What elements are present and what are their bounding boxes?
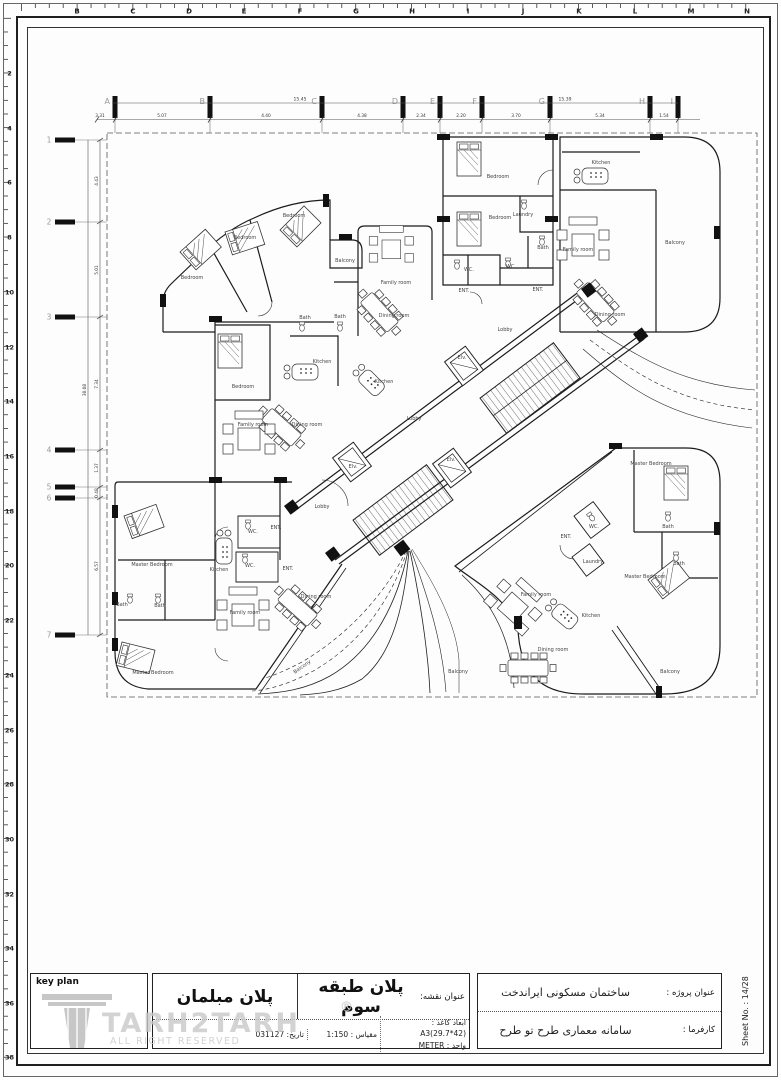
dim-segment-left: 7.34 <box>94 379 100 389</box>
grid-row-number: 5 <box>47 483 52 492</box>
room-label: ENT. <box>533 287 544 293</box>
drawing-sheet: BCDEFGHIJKLMN246810121416182022242628303… <box>0 0 781 1080</box>
room-label: ENT. <box>561 534 572 540</box>
room-label: WC. <box>245 563 255 569</box>
ruler-letter: K <box>576 8 582 16</box>
room-label: Bedroom <box>283 213 306 219</box>
room-label: Master Bedroom <box>131 562 172 568</box>
room-label: Lobby <box>314 504 329 510</box>
grid-column-marker <box>480 96 485 118</box>
room-label: Family room <box>230 610 261 616</box>
room-label: ENT. <box>283 566 294 572</box>
room-label: WC. <box>506 264 516 270</box>
dim-segment-top: 3.70 <box>511 113 521 119</box>
ruler-number: 4 <box>7 125 12 133</box>
room-label: Bath <box>662 524 674 530</box>
room-label: Elv. <box>458 355 467 361</box>
room-label: Dining room <box>292 422 323 428</box>
ruler-letter: E <box>242 8 247 16</box>
room-label: Master Bedroom <box>630 461 671 467</box>
grid-column-letter: H <box>639 97 645 106</box>
dim-segment-top: 3.31 <box>95 113 105 119</box>
grid-row-marker <box>55 315 75 320</box>
grid-row-marker <box>55 633 75 638</box>
dim-segment-left: 5.01 <box>94 265 100 275</box>
ruler-letter: I <box>467 8 470 16</box>
grid-column-marker <box>113 96 118 118</box>
dim-segment-top: 4.40 <box>261 113 271 119</box>
ruler-letter: J <box>521 8 525 16</box>
room-label: Balcony <box>665 240 685 246</box>
grid-row-number: 6 <box>47 494 52 503</box>
grid-column-marker <box>676 96 681 118</box>
grid-row-number: 3 <box>47 313 52 322</box>
titleblock-middle: عنوان نقشه: پلان طبقه سوم پلان مبلمان اب… <box>152 973 470 1049</box>
ruler-number: 28 <box>5 781 15 789</box>
grid-row-number: 1 <box>47 136 52 145</box>
ruler-number: 34 <box>5 945 15 953</box>
room-label: Bath <box>334 314 346 320</box>
ruler-letter: M <box>688 8 695 16</box>
dim-segment-top: 5.07 <box>157 113 167 119</box>
room-label: WC. <box>464 267 474 273</box>
room-label: Kitchen <box>592 160 611 166</box>
grid-row-number: 2 <box>47 218 52 227</box>
grid-row-number: 7 <box>47 631 52 640</box>
ruler-number: 2 <box>7 70 12 78</box>
date-cell: تاریخ: 031127 <box>213 1029 307 1040</box>
room-label: Elv. <box>447 457 456 463</box>
dim-segment-top: 4.38 <box>357 113 367 119</box>
titleblock-right: عنوان پروژه : ساختمان مسکونی ایراندخت کا… <box>477 973 722 1049</box>
ruler-number: 22 <box>5 617 14 625</box>
room-label: Dining room <box>595 312 626 318</box>
sheet-number: Sheet No. : 14/28 <box>741 972 750 1046</box>
project-label: عنوان پروژه : <box>653 988 721 998</box>
room-label: Family room <box>521 592 552 598</box>
grid-row-marker <box>55 448 75 453</box>
grid-column-marker <box>320 96 325 118</box>
grid-column-letter: I <box>671 97 673 106</box>
dim-segment-left: 4.43 <box>94 176 100 186</box>
ruler-number: 26 <box>5 727 15 735</box>
room-label: Laundry <box>513 212 533 218</box>
room-label: ENT. <box>459 288 470 294</box>
room-label: Bath <box>116 602 128 608</box>
room-label: Lobby <box>497 327 512 333</box>
room-label: Laundry <box>583 559 603 565</box>
room-label: Kitchen <box>582 613 601 619</box>
ruler-number: 36 <box>5 1000 15 1008</box>
grid-column-marker <box>438 96 443 118</box>
room-label: Balcony <box>660 669 680 675</box>
grid-column-letter: F <box>472 97 477 106</box>
floor-plan-canvas: BCDEFGHIJKLMN246810121416182022242628303… <box>0 0 781 1080</box>
grid-column-letter: D <box>392 97 398 106</box>
ruler-number: 20 <box>5 562 15 570</box>
dim-segment-top: 5.34 <box>595 113 605 119</box>
ruler-number: 24 <box>5 672 15 680</box>
dim-segment-top: 1.54 <box>659 113 669 119</box>
grid-column-marker <box>548 96 553 118</box>
grid-column-letter: E <box>430 97 435 106</box>
room-label: Lobby <box>406 416 421 422</box>
room-label: Family room <box>238 422 269 428</box>
ruler-number: 38 <box>5 1054 15 1062</box>
room-label: Master Bedroom <box>624 574 665 580</box>
ruler-number: 30 <box>5 836 15 844</box>
room-label: Kitchen <box>210 567 229 573</box>
ruler-letter: F <box>298 8 303 16</box>
grid-column-marker <box>401 96 406 118</box>
project-title: ساختمان مسکونی ایراندخت <box>478 986 653 999</box>
room-label: Bedroom <box>489 215 512 221</box>
room-label: Kitchen <box>375 379 394 385</box>
ruler-number: 10 <box>5 289 15 297</box>
room-label: Dining room <box>538 647 569 653</box>
ruler-letter: B <box>74 8 79 16</box>
grid-row-marker <box>55 496 75 501</box>
room-label: Balcony <box>335 258 355 264</box>
grid-column-letter: G <box>539 97 545 106</box>
ruler-letter: N <box>744 8 750 16</box>
room-label: Bath <box>673 561 685 567</box>
ruler-number: 16 <box>5 453 15 461</box>
ruler-letter: D <box>186 8 192 16</box>
grid-column-letter: B <box>200 97 206 106</box>
room-label: Dining room <box>301 594 332 600</box>
grid-column-marker <box>208 96 213 118</box>
room-label: Balcony <box>293 659 313 675</box>
dim-segment-top: 2.20 <box>456 113 466 119</box>
furniture <box>116 142 689 683</box>
dim-total-top: 15.45 <box>294 97 307 103</box>
dim-segment-left: 0.48 <box>94 488 100 498</box>
room-label: WC. <box>589 524 599 530</box>
map-title-label: عنوان نقشه: <box>420 992 465 1002</box>
furniture-plan-title: پلان مبلمان <box>153 974 297 1019</box>
room-label: ENT. <box>271 525 282 531</box>
room-label: Bedroom <box>181 275 204 281</box>
ruler-letter: H <box>409 8 415 16</box>
room-label: Family room <box>381 280 412 286</box>
room-label: Elv. <box>349 464 358 470</box>
keyplan-box: key plan <box>30 973 148 1049</box>
map-title: پلان طبقه سوم <box>302 977 420 1017</box>
grid-row-number: 4 <box>47 446 52 455</box>
ruler-number: 6 <box>7 179 12 187</box>
dim-segment-left: 1.37 <box>94 463 100 473</box>
dim-total-left: 30.08 <box>82 384 88 397</box>
client-name: سامانه معماری طرح تو طرح <box>478 1024 653 1037</box>
ruler-number: 8 <box>7 234 12 242</box>
room-label: Balcony <box>448 669 468 675</box>
dim-segment-left: 6.57 <box>94 561 100 571</box>
grid-column-letter: C <box>311 97 317 106</box>
ruler-letter: G <box>353 8 359 16</box>
room-label: Bath <box>154 603 166 609</box>
grid-row-marker <box>55 220 75 225</box>
dim-total-top: 15.39 <box>559 97 572 103</box>
ruler-letter: C <box>130 8 135 16</box>
room-label: Master Bedroom <box>132 670 173 676</box>
ruler-number: 32 <box>5 891 14 899</box>
ruler-number: 18 <box>5 508 15 516</box>
paper-size-cell: ابعاد کاغذ : A3(29.7*42) واحد : METER <box>380 1016 469 1052</box>
ruler-letter: L <box>633 8 638 16</box>
room-label: Dining room <box>379 313 410 319</box>
room-label: Bedroom <box>487 174 510 180</box>
room-label: WC. <box>248 529 258 535</box>
keyplan-label: key plan <box>36 977 79 987</box>
room-label: Bedroom <box>232 384 255 390</box>
grid-row-marker <box>55 138 75 143</box>
grid-column-letter: A <box>105 97 111 106</box>
room-label: Bedroom <box>234 235 257 241</box>
room-label: Kitchen <box>313 359 332 365</box>
room-label: Bath <box>537 245 549 251</box>
grid-row-marker <box>55 485 75 490</box>
room-label: Bath <box>299 315 311 321</box>
client-label: کارفرما : <box>653 1025 721 1035</box>
ruler-number: 14 <box>5 398 15 406</box>
dim-segment-top: 2.34 <box>416 113 426 119</box>
ruler-number: 12 <box>5 344 14 352</box>
property-boundary <box>107 133 757 697</box>
room-label: Family room <box>563 247 594 253</box>
grid-column-marker <box>648 96 653 118</box>
scale-cell: مقیاس : 1:150 <box>307 1029 380 1040</box>
